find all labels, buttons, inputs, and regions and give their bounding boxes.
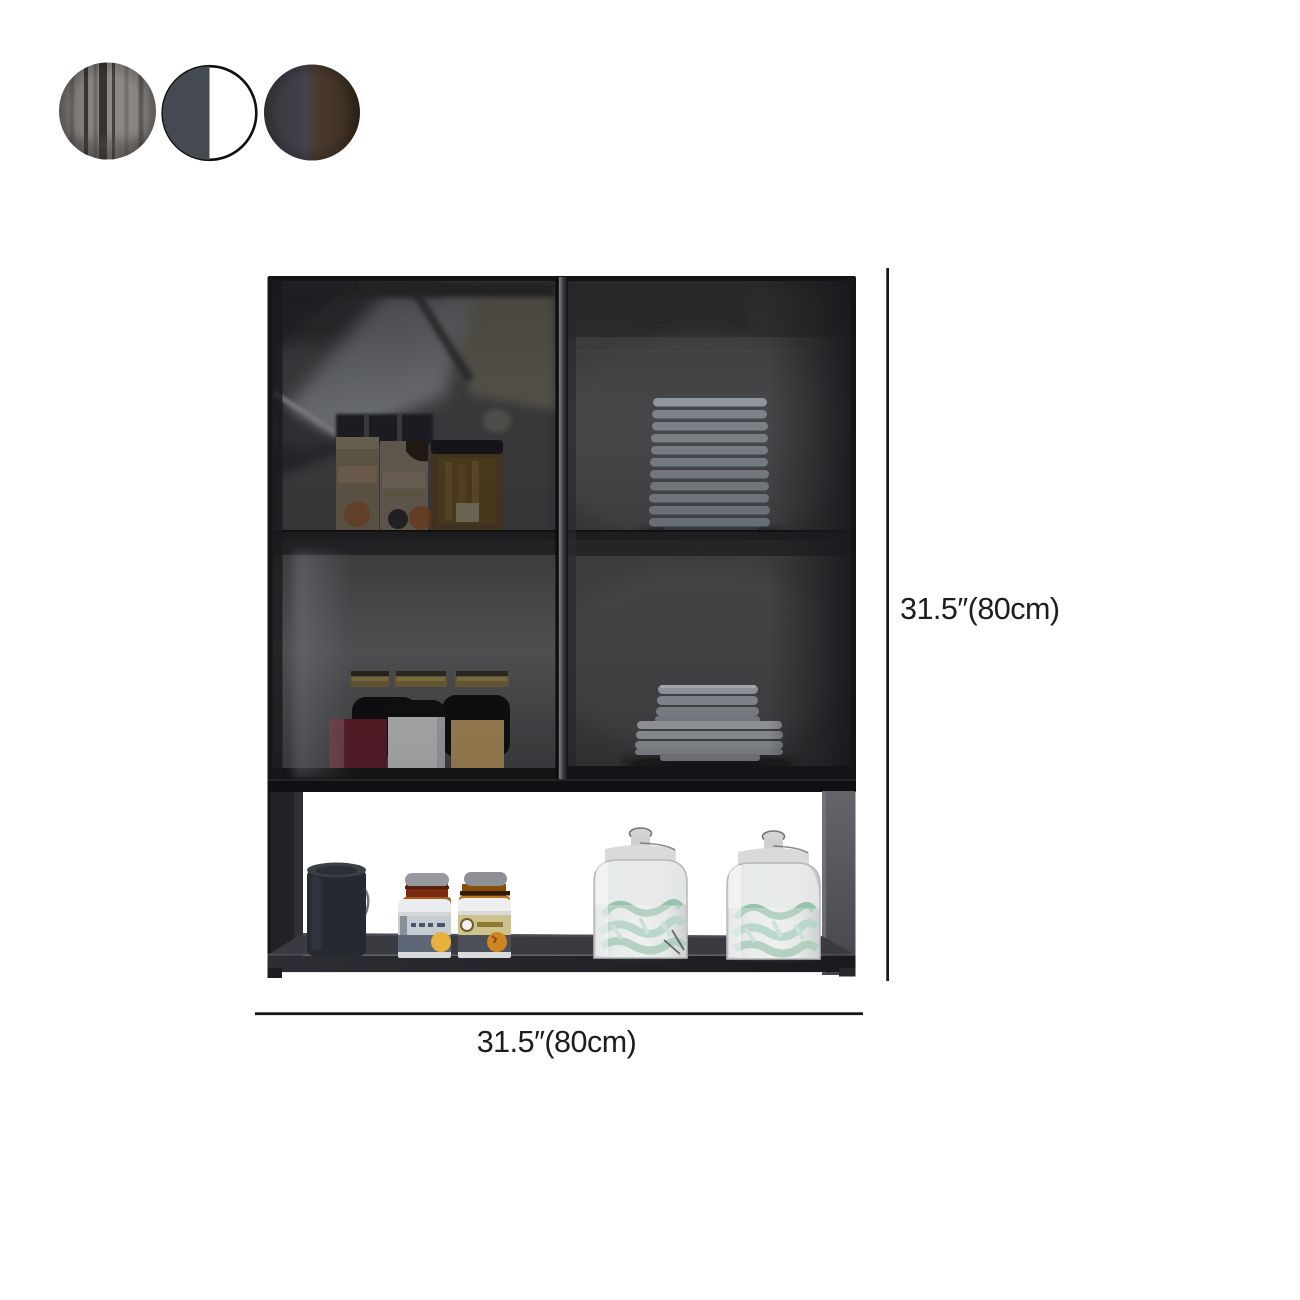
svg-text:31.5″(80cm): 31.5″(80cm): [900, 592, 1060, 626]
svg-text:31.5″(80cm): 31.5″(80cm): [477, 1025, 637, 1059]
